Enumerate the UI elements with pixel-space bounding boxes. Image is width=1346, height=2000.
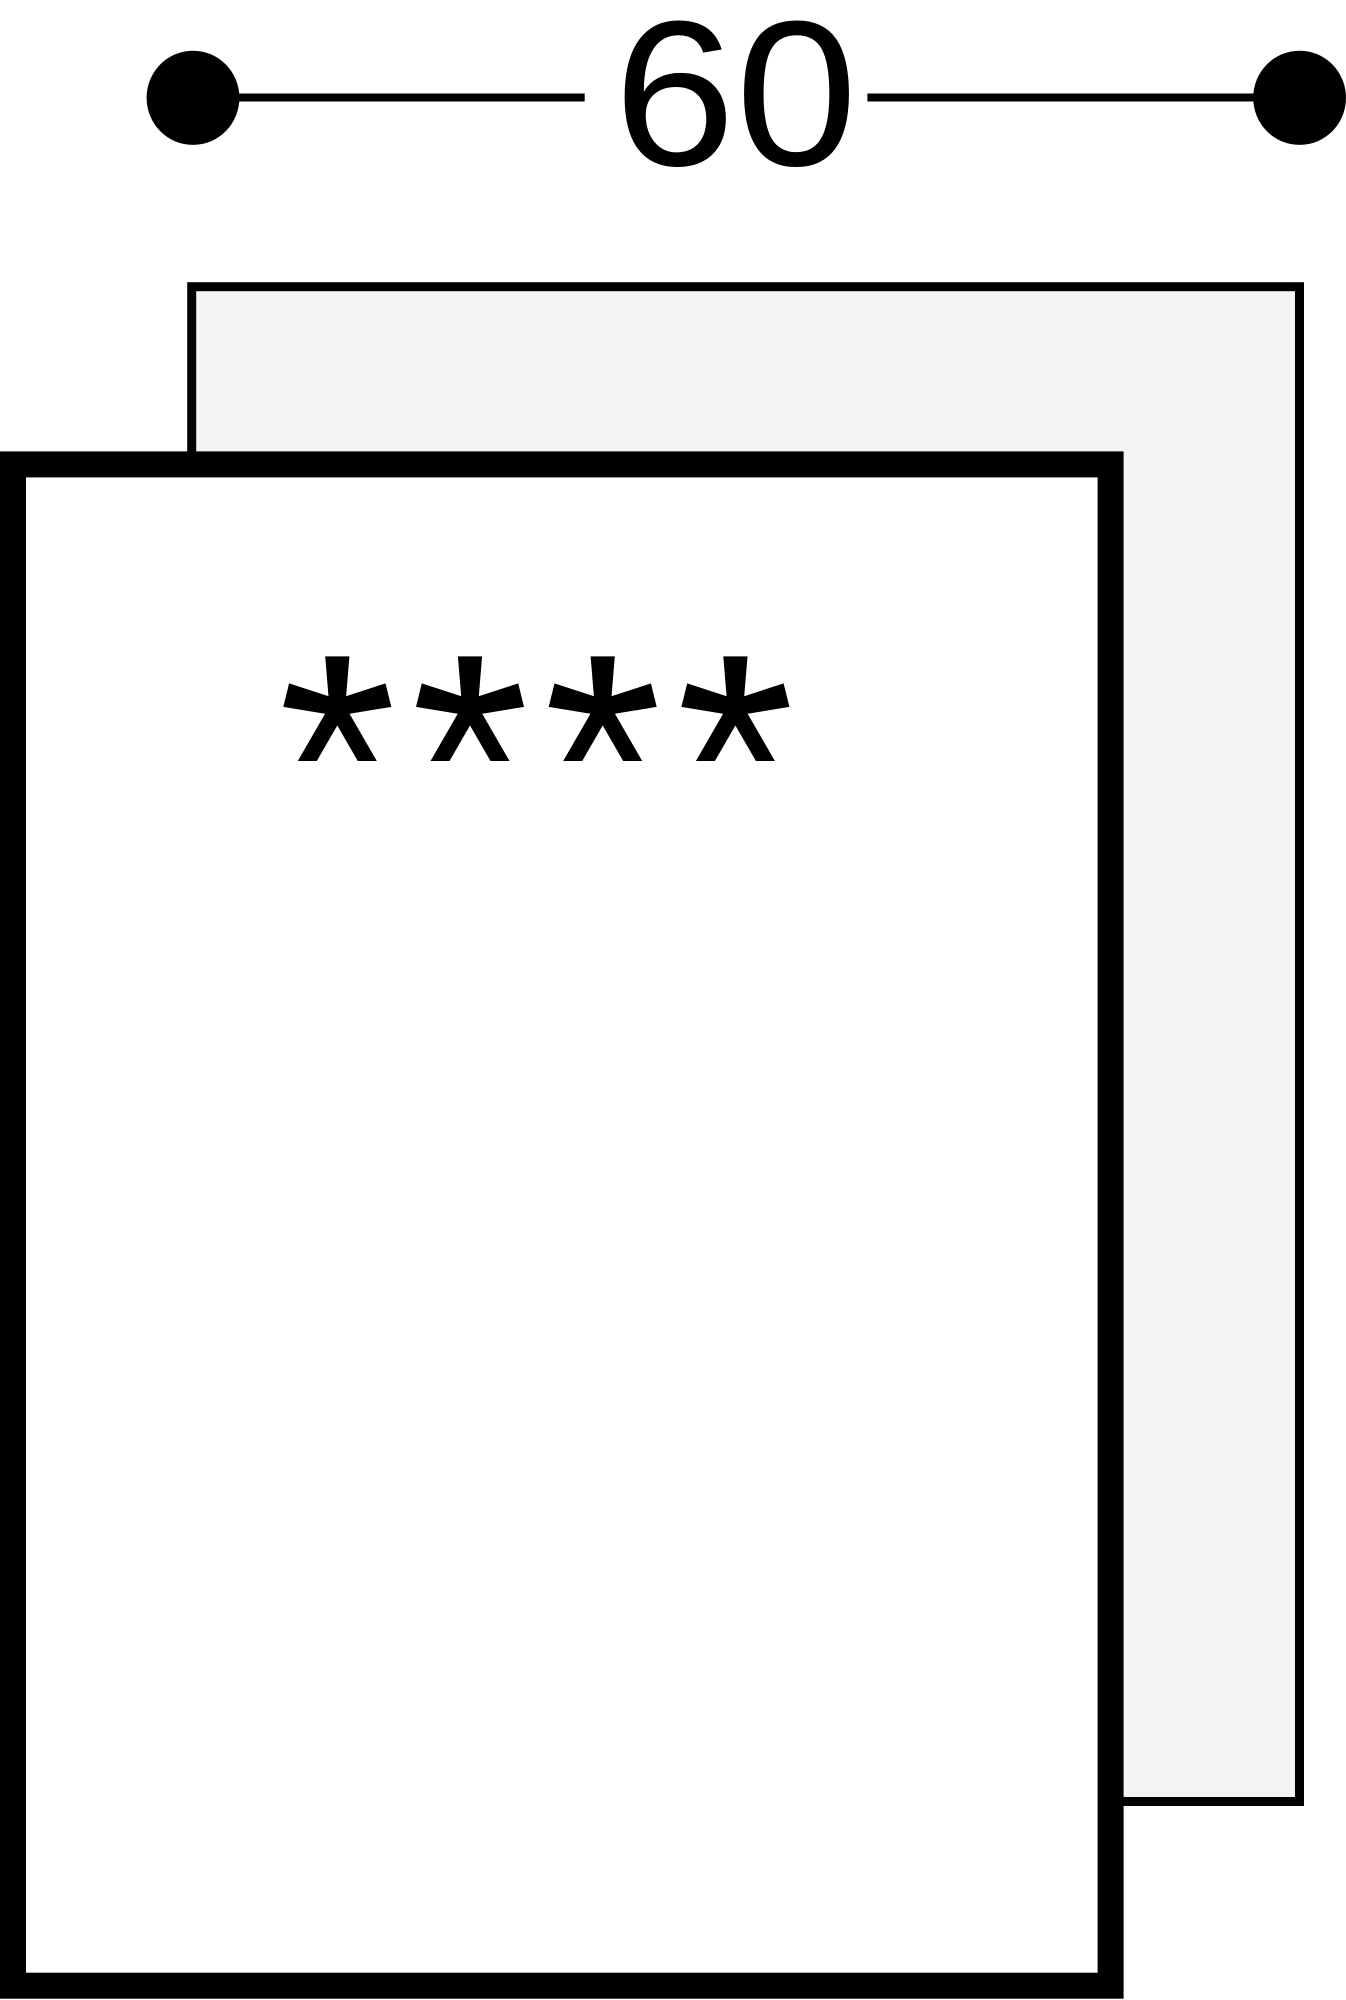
svg-text:60: 60 [614, 0, 858, 209]
